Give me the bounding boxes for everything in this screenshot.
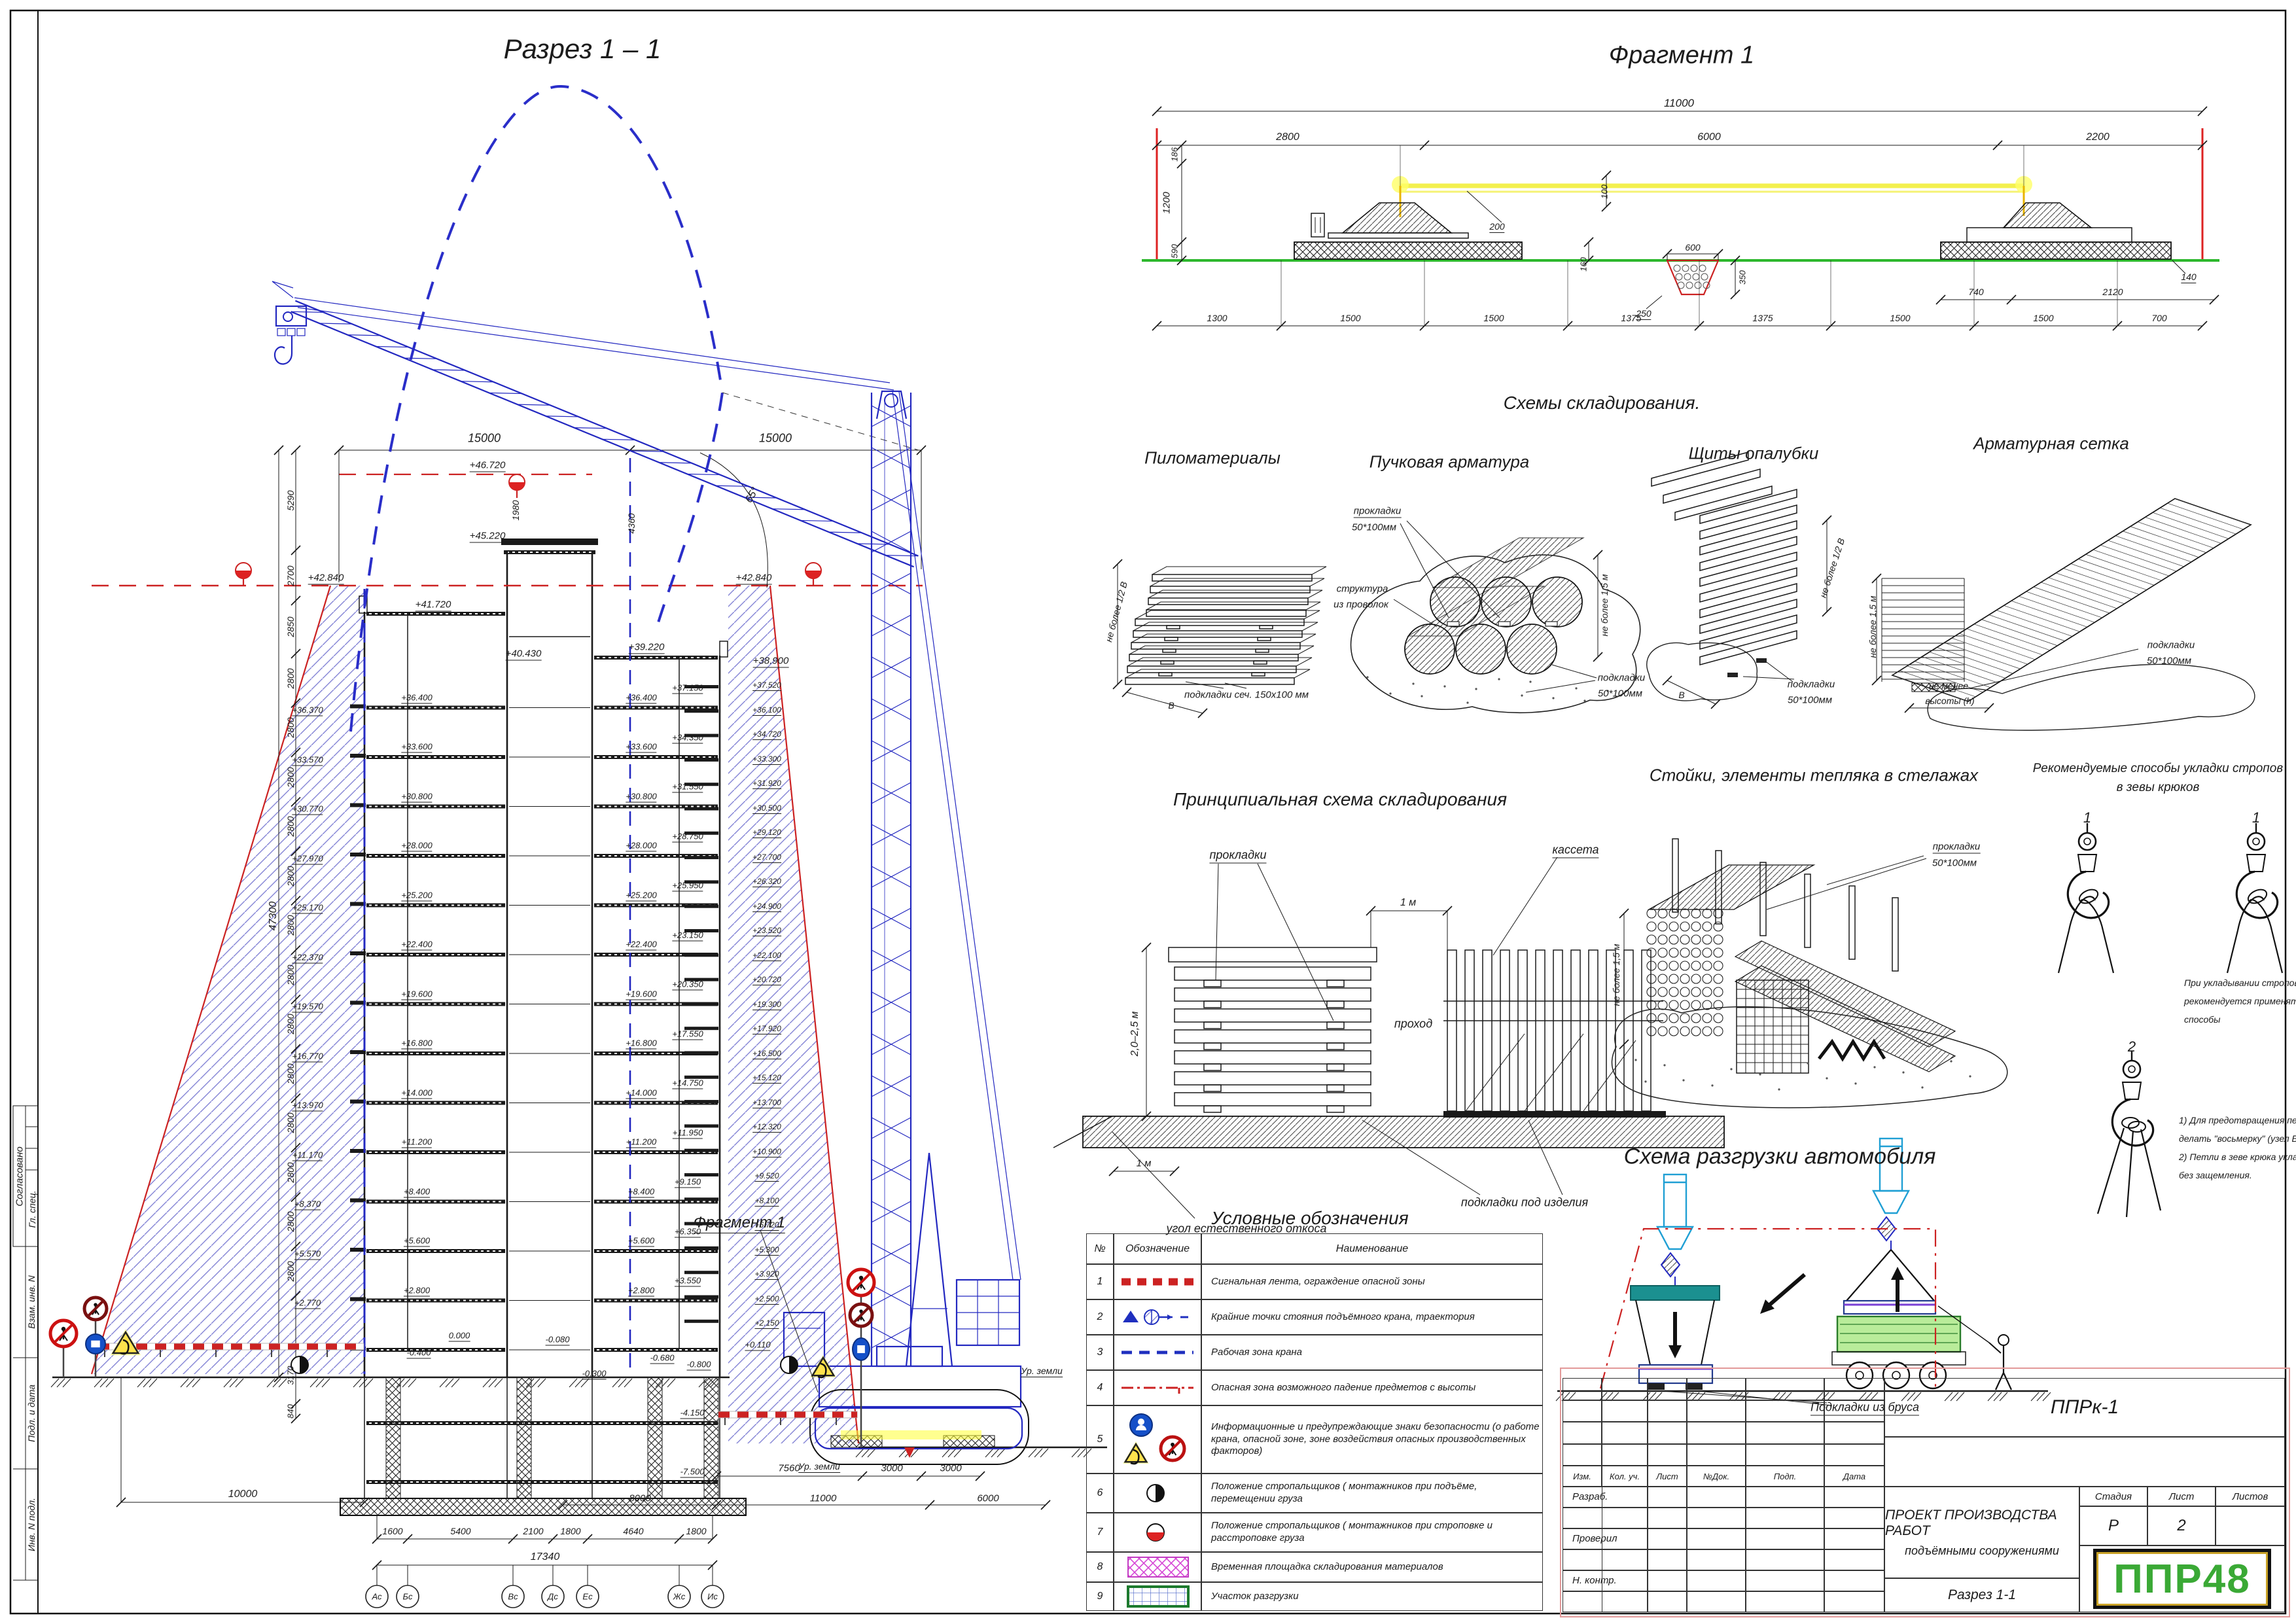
titleblock-sign-cell (1602, 1508, 1648, 1528)
ppr48-logo: ППР48 (2093, 1549, 2271, 1609)
titleblock-sign-cell (1687, 1487, 1746, 1508)
dim-label: 47300 (268, 902, 279, 931)
dim-label: +37.150 (672, 683, 703, 694)
dim-label: +23.150 (672, 930, 703, 942)
dim-label: 11000 (1664, 97, 1694, 110)
dim-label: 6000 (977, 1493, 998, 1504)
dim-label: +20.720 (752, 975, 781, 985)
dim-label: Разрез 1 – 1 (504, 33, 662, 65)
dim-label: +9.150 (675, 1177, 701, 1188)
dim-label: 140 (2181, 272, 2196, 283)
titleblock-sign-cell (1648, 1487, 1687, 1508)
note-label: делать "восьмерку" (узел Блеквуля), (2179, 1133, 2296, 1144)
dim-label: 5290 (285, 490, 296, 510)
dim-label: 1600 (382, 1526, 402, 1536)
note-label: высоты (h) (1925, 696, 1974, 706)
note-label: прокладки (1354, 506, 1402, 518)
dim-label: 3170 (286, 1366, 296, 1385)
empty-band (1884, 1437, 2285, 1487)
legend-row-name: Рабочая зона крана (1201, 1335, 1543, 1370)
dim-label: 17340 (531, 1551, 560, 1563)
dim-label: +25.200 (401, 891, 432, 902)
note-label: 50*100мм (1932, 858, 1977, 869)
dim-label: -4.150 (680, 1408, 705, 1419)
legend-row-name: Положение стропальщиков ( монтажников пр… (1201, 1474, 1543, 1513)
dim-label: 11000 (810, 1493, 837, 1504)
dim-label: +17.920 (752, 1024, 781, 1034)
titleblock-sign-cell (1648, 1528, 1687, 1549)
note-label: подкладки (1788, 679, 1835, 690)
dim-label: 700 (2151, 313, 2166, 323)
dim-label: 2800 (285, 1112, 296, 1133)
dim-label: Ис (707, 1592, 718, 1602)
titleblock-sign-cell (1746, 1508, 1824, 1528)
titleblock-sign-cell (1824, 1508, 1884, 1528)
legend-row-num: 6 (1086, 1474, 1114, 1513)
dim-label: Дс (548, 1592, 558, 1602)
note-label: подкладки под изделия (1461, 1196, 1588, 1210)
dim-label: +23.520 (752, 926, 781, 936)
dim-label: +34.350 (672, 733, 703, 744)
note-label: Пиломатериалы (1144, 448, 1280, 468)
note-label: проход (1394, 1017, 1432, 1031)
titleblock-grid-cell (1746, 1400, 1824, 1422)
dim-label: +22.100 (752, 951, 781, 961)
legend-row-symbol (1114, 1582, 1201, 1611)
titleblock-grid-cell (1687, 1422, 1746, 1444)
note-label: не более 1,5 м (1599, 574, 1610, 636)
dim-label: +16.500 (752, 1049, 781, 1059)
doc-code: ППРк-1 (1884, 1378, 2285, 1437)
note-label: Схема разгрузки автомобиля (1624, 1144, 1936, 1170)
dim-label: 2800 (285, 668, 296, 688)
note-label: 50*100мм (1352, 522, 1396, 533)
dim-label: +2.770 (294, 1298, 321, 1309)
dim-label: +14.750 (672, 1078, 703, 1089)
note-label: Арматурная сетка (1973, 434, 2129, 454)
legend-row-num: 5 (1086, 1405, 1114, 1474)
note-label: 1 м (1400, 897, 1416, 909)
legend-row-symbol (1114, 1405, 1201, 1474)
titleblock-grid-cell (1648, 1378, 1687, 1400)
titleblock-grid-cell (1602, 1378, 1648, 1400)
note-label: подкладки (2147, 640, 2195, 651)
dim-label: 8000 (629, 1493, 650, 1504)
dim-label: Жс (673, 1592, 685, 1602)
dim-label: +11.200 (626, 1137, 656, 1148)
dim-label: 2850 (285, 616, 296, 637)
note-label: При укладывании стропов в зев крюка (2184, 978, 2296, 988)
dim-label: +0.110 (745, 1340, 770, 1351)
legend-row-num: 1 (1086, 1264, 1114, 1299)
note-label: 2,0–2,5 м (1129, 1012, 1141, 1057)
dim-label: Бс (403, 1592, 413, 1602)
dim-label: +14.000 (401, 1088, 432, 1099)
note-label: прокладки (1209, 849, 1266, 864)
listov-header: Листов (2216, 1487, 2285, 1506)
legend-row-symbol (1114, 1370, 1201, 1405)
titleblock-grid-cell (1602, 1400, 1648, 1422)
stamp-label: Согласовано (14, 1146, 26, 1207)
dim-label: Ес (582, 1592, 592, 1602)
titleblock-grid-cell (1602, 1422, 1648, 1444)
legend-row-name: Участок разгрузки (1201, 1582, 1543, 1611)
titleblock-sign-cell (1648, 1591, 1687, 1612)
dim-label: +22.400 (401, 940, 432, 951)
titleblock-sign-cell (1602, 1487, 1648, 1508)
dim-label: 200 (1489, 221, 1504, 233)
note-label: рекомендуется применять следующие (2184, 996, 2296, 1006)
legend-header-name: Наименование (1201, 1233, 1543, 1264)
note-label: способы (2184, 1014, 2220, 1025)
dim-label: +41.720 (415, 599, 451, 612)
dim-label: 3000 (881, 1463, 902, 1474)
dim-label: +13.970 (292, 1101, 323, 1112)
legend-header-num: № (1086, 1233, 1114, 1264)
dim-label: +19.600 (626, 989, 656, 1000)
col-ndok: №Док. (1687, 1466, 1746, 1487)
titleblock-sign-cell (1824, 1487, 1884, 1508)
col-kol: Кол. уч. (1602, 1466, 1648, 1487)
dim-label: +16.770 (292, 1051, 323, 1063)
dim-label: +13.700 (752, 1098, 781, 1108)
dim-label: +27.970 (292, 854, 323, 865)
dim-label: -0.300 (582, 1369, 607, 1380)
dim-label: +24.900 (752, 902, 781, 912)
titleblock-grid-cell (1602, 1444, 1648, 1466)
note-label: без защемления. (2179, 1170, 2252, 1180)
drawing-sheet: { "section": { "title": "Разрез 1 – 1", … (0, 0, 2296, 1624)
dim-label: +25.950 (672, 881, 703, 892)
titleblock-grid-cell (1746, 1422, 1824, 1444)
note-label: кассета (1552, 843, 1598, 858)
dim-label: +16.800 (626, 1038, 656, 1050)
dim-label: 15000 (759, 432, 792, 446)
titleblock-sign-cell (1648, 1570, 1687, 1591)
titleblock-grid-cell (1648, 1444, 1687, 1466)
dim-label: +2.800 (628, 1286, 654, 1297)
dim-label: Ур. земли (1021, 1366, 1063, 1377)
dim-label: 2800 (285, 717, 296, 737)
dim-label: 2800 (1276, 132, 1299, 143)
dim-label: +15.120 (752, 1073, 781, 1084)
truck-unloading-drawing (1556, 1139, 2051, 1405)
dim-label: 840 (286, 1404, 296, 1419)
dim-label: 2800 (285, 1261, 296, 1281)
note-label: Рекомендуемые способы укладки стропов (2033, 762, 2283, 776)
titleblock-grid-cell (1824, 1378, 1884, 1400)
stage-header: Стадия (2079, 1487, 2147, 1506)
titleblock-sign-cell (1687, 1508, 1746, 1528)
titleblock-sign-cell (1602, 1528, 1648, 1549)
titleblock-sign-cell (1648, 1549, 1687, 1570)
legend-row-name: Крайние точки стояния подъёмного крана, … (1201, 1299, 1543, 1335)
titleblock-grid-cell (1746, 1444, 1824, 1466)
legend-row-symbol (1114, 1335, 1201, 1370)
dim-label: +37.520 (752, 680, 781, 691)
dim-label: +12.320 (752, 1122, 781, 1133)
note-label: подкладки сеч. 150х100 мм (1184, 690, 1309, 701)
dim-label: 5400 (450, 1526, 470, 1536)
dim-label: +10.900 (752, 1147, 781, 1157)
titleblock-sign-cell (1687, 1549, 1746, 1570)
legend-row-symbol (1114, 1299, 1201, 1335)
titleblock-sign-cell (1824, 1570, 1884, 1591)
dim-label: +38.900 (753, 656, 789, 668)
dim-label: 740 (1968, 287, 1983, 297)
dim-label: 2800 (285, 767, 296, 787)
dim-label: +19.570 (292, 1002, 323, 1013)
legend-row-name: Временная площадка складирования материа… (1201, 1552, 1543, 1582)
note-label: 50*100мм (1598, 688, 1642, 699)
titleblock-grid-cell (1824, 1400, 1884, 1422)
titleblock-sign-cell (1824, 1591, 1884, 1612)
dim-label: 2100 (523, 1526, 543, 1536)
dim-label: +28.750 (672, 832, 703, 843)
titleblock-grid-cell (1824, 1422, 1884, 1444)
legend-row-symbol (1114, 1474, 1201, 1513)
note-label: прокладки (1933, 841, 1981, 854)
col-data: Дата (1824, 1466, 1884, 1487)
dim-label: +3.920 (754, 1269, 779, 1280)
dim-label: Ас (372, 1592, 381, 1602)
dim-label: 160 (1579, 257, 1589, 272)
racks-drawing (1612, 839, 2007, 1108)
note-label: не менее (1929, 680, 1968, 691)
titleblock-grid-cell (1563, 1378, 1602, 1400)
dim-label: +31.920 (752, 779, 781, 789)
dim-label: +22.370 (292, 953, 323, 964)
stamp-label: Инв. N подл. (26, 1498, 37, 1551)
dim-label: +45.220 (470, 531, 506, 543)
dim-label: +11.170 (292, 1150, 323, 1161)
titleblock-sign-cell (1602, 1591, 1648, 1612)
dim-label: 1200 (1161, 192, 1173, 213)
dim-label: +19.300 (752, 1000, 781, 1010)
dim-label: 3000 (940, 1463, 961, 1474)
dim-label: +33.300 (752, 754, 781, 765)
dim-label: 6000 (1697, 132, 1721, 143)
dim-label: 10000 (228, 1489, 258, 1500)
note-label: 50*100мм (1788, 695, 1832, 706)
dim-label: 1375 (1752, 313, 1773, 323)
dim-label: +33.600 (626, 742, 656, 753)
legend-row-name: Сигнальная лента, ограждение опасной зон… (1201, 1264, 1543, 1299)
dim-label: +34.720 (752, 730, 781, 740)
dim-label: 1500 (1340, 313, 1360, 323)
dim-label: 1800 (560, 1526, 580, 1536)
dim-label: +30.800 (401, 792, 432, 803)
dim-label: +30.800 (626, 792, 656, 803)
stamp-label: Взам. инв. N (26, 1275, 37, 1329)
titleblock-grid-cell (1687, 1444, 1746, 1466)
stamp-label: Подл. и дата (26, 1385, 37, 1442)
note-label: 2) Петли в зеве крюка укладывать в ряд (2179, 1152, 2296, 1162)
titleblock-grid-cell (1563, 1422, 1602, 1444)
dim-label: +26.320 (752, 877, 781, 887)
dim-label: Ур. земли (798, 1461, 840, 1473)
legend-row-num: 7 (1086, 1513, 1114, 1552)
titleblock-grid-cell (1746, 1378, 1824, 1400)
titleblock-sign-cell (1687, 1591, 1746, 1612)
dim-label: 1500 (1483, 313, 1504, 323)
note-label: 1 м (1137, 1158, 1152, 1169)
dim-label: 2800 (285, 1014, 296, 1034)
dim-label: 2800 (285, 816, 296, 836)
titleblock-grid-cell (1648, 1400, 1687, 1422)
dim-label: +27.700 (752, 853, 781, 863)
dim-label: +2.800 (404, 1286, 430, 1297)
titleblock-grid-cell (1687, 1400, 1746, 1422)
note-label: не более 1,5 м (1867, 595, 1878, 658)
dim-label: 4360 (626, 513, 637, 533)
note-label: подкладки (1598, 673, 1646, 684)
titleblock-grid-cell (1563, 1444, 1602, 1466)
listov-value (2216, 1506, 2285, 1545)
dim-label: 2120 (2102, 287, 2123, 297)
fragment-1-drawing (1142, 107, 2219, 330)
dim-label: +33.600 (401, 742, 432, 753)
note-label: в зевы крюков (2117, 781, 2200, 795)
dim-label: -0.800 (687, 1360, 711, 1371)
dim-label: +28.000 (626, 841, 656, 852)
dim-label: +2.500 (754, 1294, 779, 1305)
note-label: структура (1337, 584, 1388, 595)
dim-label: +36.400 (401, 693, 432, 704)
dim-label: 2700 (285, 565, 296, 586)
dim-label: +22.400 (626, 940, 656, 951)
note-label: 1 (2083, 809, 2091, 826)
dim-label: +16.800 (401, 1038, 432, 1050)
dim-label: +25.170 (292, 903, 323, 914)
note-label: 2 (2128, 1038, 2136, 1055)
legend-row-name: Положение стропальщиков ( монтажников пр… (1201, 1513, 1543, 1552)
dim-label: 2800 (285, 866, 296, 886)
dim-label: +3.550 (675, 1276, 701, 1287)
note-label: Щиты опалубки (1689, 444, 1819, 464)
legend-row-num: 9 (1086, 1582, 1114, 1611)
legend-row-symbol (1114, 1264, 1201, 1299)
dim-label: +36.100 (752, 705, 781, 716)
note-label: 50*100мм (2147, 656, 2191, 667)
stage-value: Р (2079, 1506, 2147, 1545)
titleblock-sign-cell (1824, 1528, 1884, 1549)
titleblock-sign-cell (1687, 1570, 1746, 1591)
dim-label: 1375 (1621, 313, 1641, 323)
legend-row-num: 4 (1086, 1370, 1114, 1405)
titleblock-sign-cell (1746, 1591, 1824, 1612)
titleblock-grid-cell (1824, 1444, 1884, 1466)
note-label: 1) Для предотвращения передвижки стропа (2179, 1115, 2296, 1125)
dim-label: +19.600 (401, 989, 432, 1000)
titleblock-sign-cell (1602, 1549, 1648, 1570)
dim-label: Фрагмент 1 (694, 1214, 785, 1233)
dim-label: 2800 (285, 915, 296, 935)
dim-label: +46.720 (470, 460, 506, 472)
stamp-label: Гл. спец. (27, 1190, 37, 1227)
titleblock-sign-cell (1746, 1549, 1824, 1570)
dim-label: +11.200 (402, 1137, 432, 1148)
dim-label: 2800 (285, 964, 296, 985)
dim-label: -0.680 (650, 1353, 675, 1364)
titleblock-grid-cell (1648, 1422, 1687, 1444)
dim-label: +36.370 (292, 705, 323, 716)
dim-label: 2800 (285, 1211, 296, 1231)
dim-label: +33.570 (292, 755, 323, 766)
titleblock-grid-cell (1563, 1400, 1602, 1422)
dim-label: +5.600 (628, 1236, 654, 1247)
storage-schemes-drawing (1113, 452, 2255, 730)
titleblock-sign-cell (1648, 1508, 1687, 1528)
dim-label: 350 (1738, 270, 1748, 285)
dim-label: +5.570 (294, 1249, 321, 1260)
legend-row-num: 8 (1086, 1552, 1114, 1582)
dim-label: +29.120 (752, 828, 781, 838)
section-1-1-drawing (50, 86, 1107, 1608)
dim-label: +8.400 (404, 1187, 430, 1198)
legend-row-name: Опасная зона возможного падение предмето… (1201, 1370, 1543, 1405)
dim-label: +14.000 (626, 1088, 656, 1099)
col-izm: Изм. (1563, 1466, 1602, 1487)
dim-label: 186 (1170, 147, 1180, 162)
legend-row-symbol (1114, 1513, 1201, 1552)
titleblock-sign-cell (1746, 1570, 1824, 1591)
titleblock-sign-cell (1602, 1570, 1648, 1591)
dim-label: +42.840 (308, 573, 344, 585)
project-line2: подъёмными сооружениями (1905, 1544, 2059, 1558)
dim-label: -0.080 (546, 1335, 570, 1346)
dim-label: +11.950 (673, 1128, 703, 1139)
titleblock-sign-cell (1746, 1528, 1824, 1549)
dim-label: 0.000 (449, 1331, 470, 1342)
dim-label: +30.500 (752, 803, 781, 814)
dim-label: 2800 (285, 1162, 296, 1182)
dim-label: 4640 (623, 1526, 643, 1536)
dim-label: +31.550 (672, 782, 703, 793)
dim-label: +36.400 (626, 693, 656, 704)
dim-label: +5.600 (404, 1236, 430, 1247)
dim-label: +28.000 (401, 841, 432, 852)
col-podp: Подп. (1746, 1466, 1824, 1487)
dim-label: 100 (1600, 185, 1610, 199)
dim-label: 15000 (468, 432, 501, 446)
dim-label: Фрагмент 1 (1609, 42, 1754, 70)
note-label: 1 (2252, 809, 2260, 826)
legend-row-num: 3 (1086, 1335, 1114, 1370)
dim-label: +9.520 (754, 1171, 779, 1182)
note-label: В (1678, 690, 1684, 700)
note-label: Пучковая арматура (1369, 452, 1530, 472)
dim-label: -7.500 (680, 1467, 705, 1478)
dim-label: 1980 (510, 500, 521, 520)
dim-label: +25.200 (626, 891, 656, 902)
note-label: Схемы складирования. (1504, 393, 1701, 414)
dim-label: +5.300 (754, 1245, 779, 1256)
dim-label: +2.150 (754, 1318, 779, 1329)
list-header: Лист (2147, 1487, 2216, 1506)
dim-label: 2800 (285, 1063, 296, 1084)
dim-label: 1300 (1207, 313, 1227, 323)
dim-label: +42.840 (736, 573, 772, 585)
titleblock-grid-cell (1687, 1378, 1746, 1400)
legend-row-symbol (1114, 1552, 1201, 1582)
legend-header-symbol: Обозначение (1114, 1233, 1201, 1264)
dim-label: +39.220 (629, 642, 665, 654)
titleblock-sign-cell (1687, 1528, 1746, 1549)
sheet-name: Разрез 1-1 (1884, 1578, 2079, 1612)
col-list: Лист (1648, 1466, 1687, 1487)
note-label: из проволок (1333, 599, 1388, 610)
